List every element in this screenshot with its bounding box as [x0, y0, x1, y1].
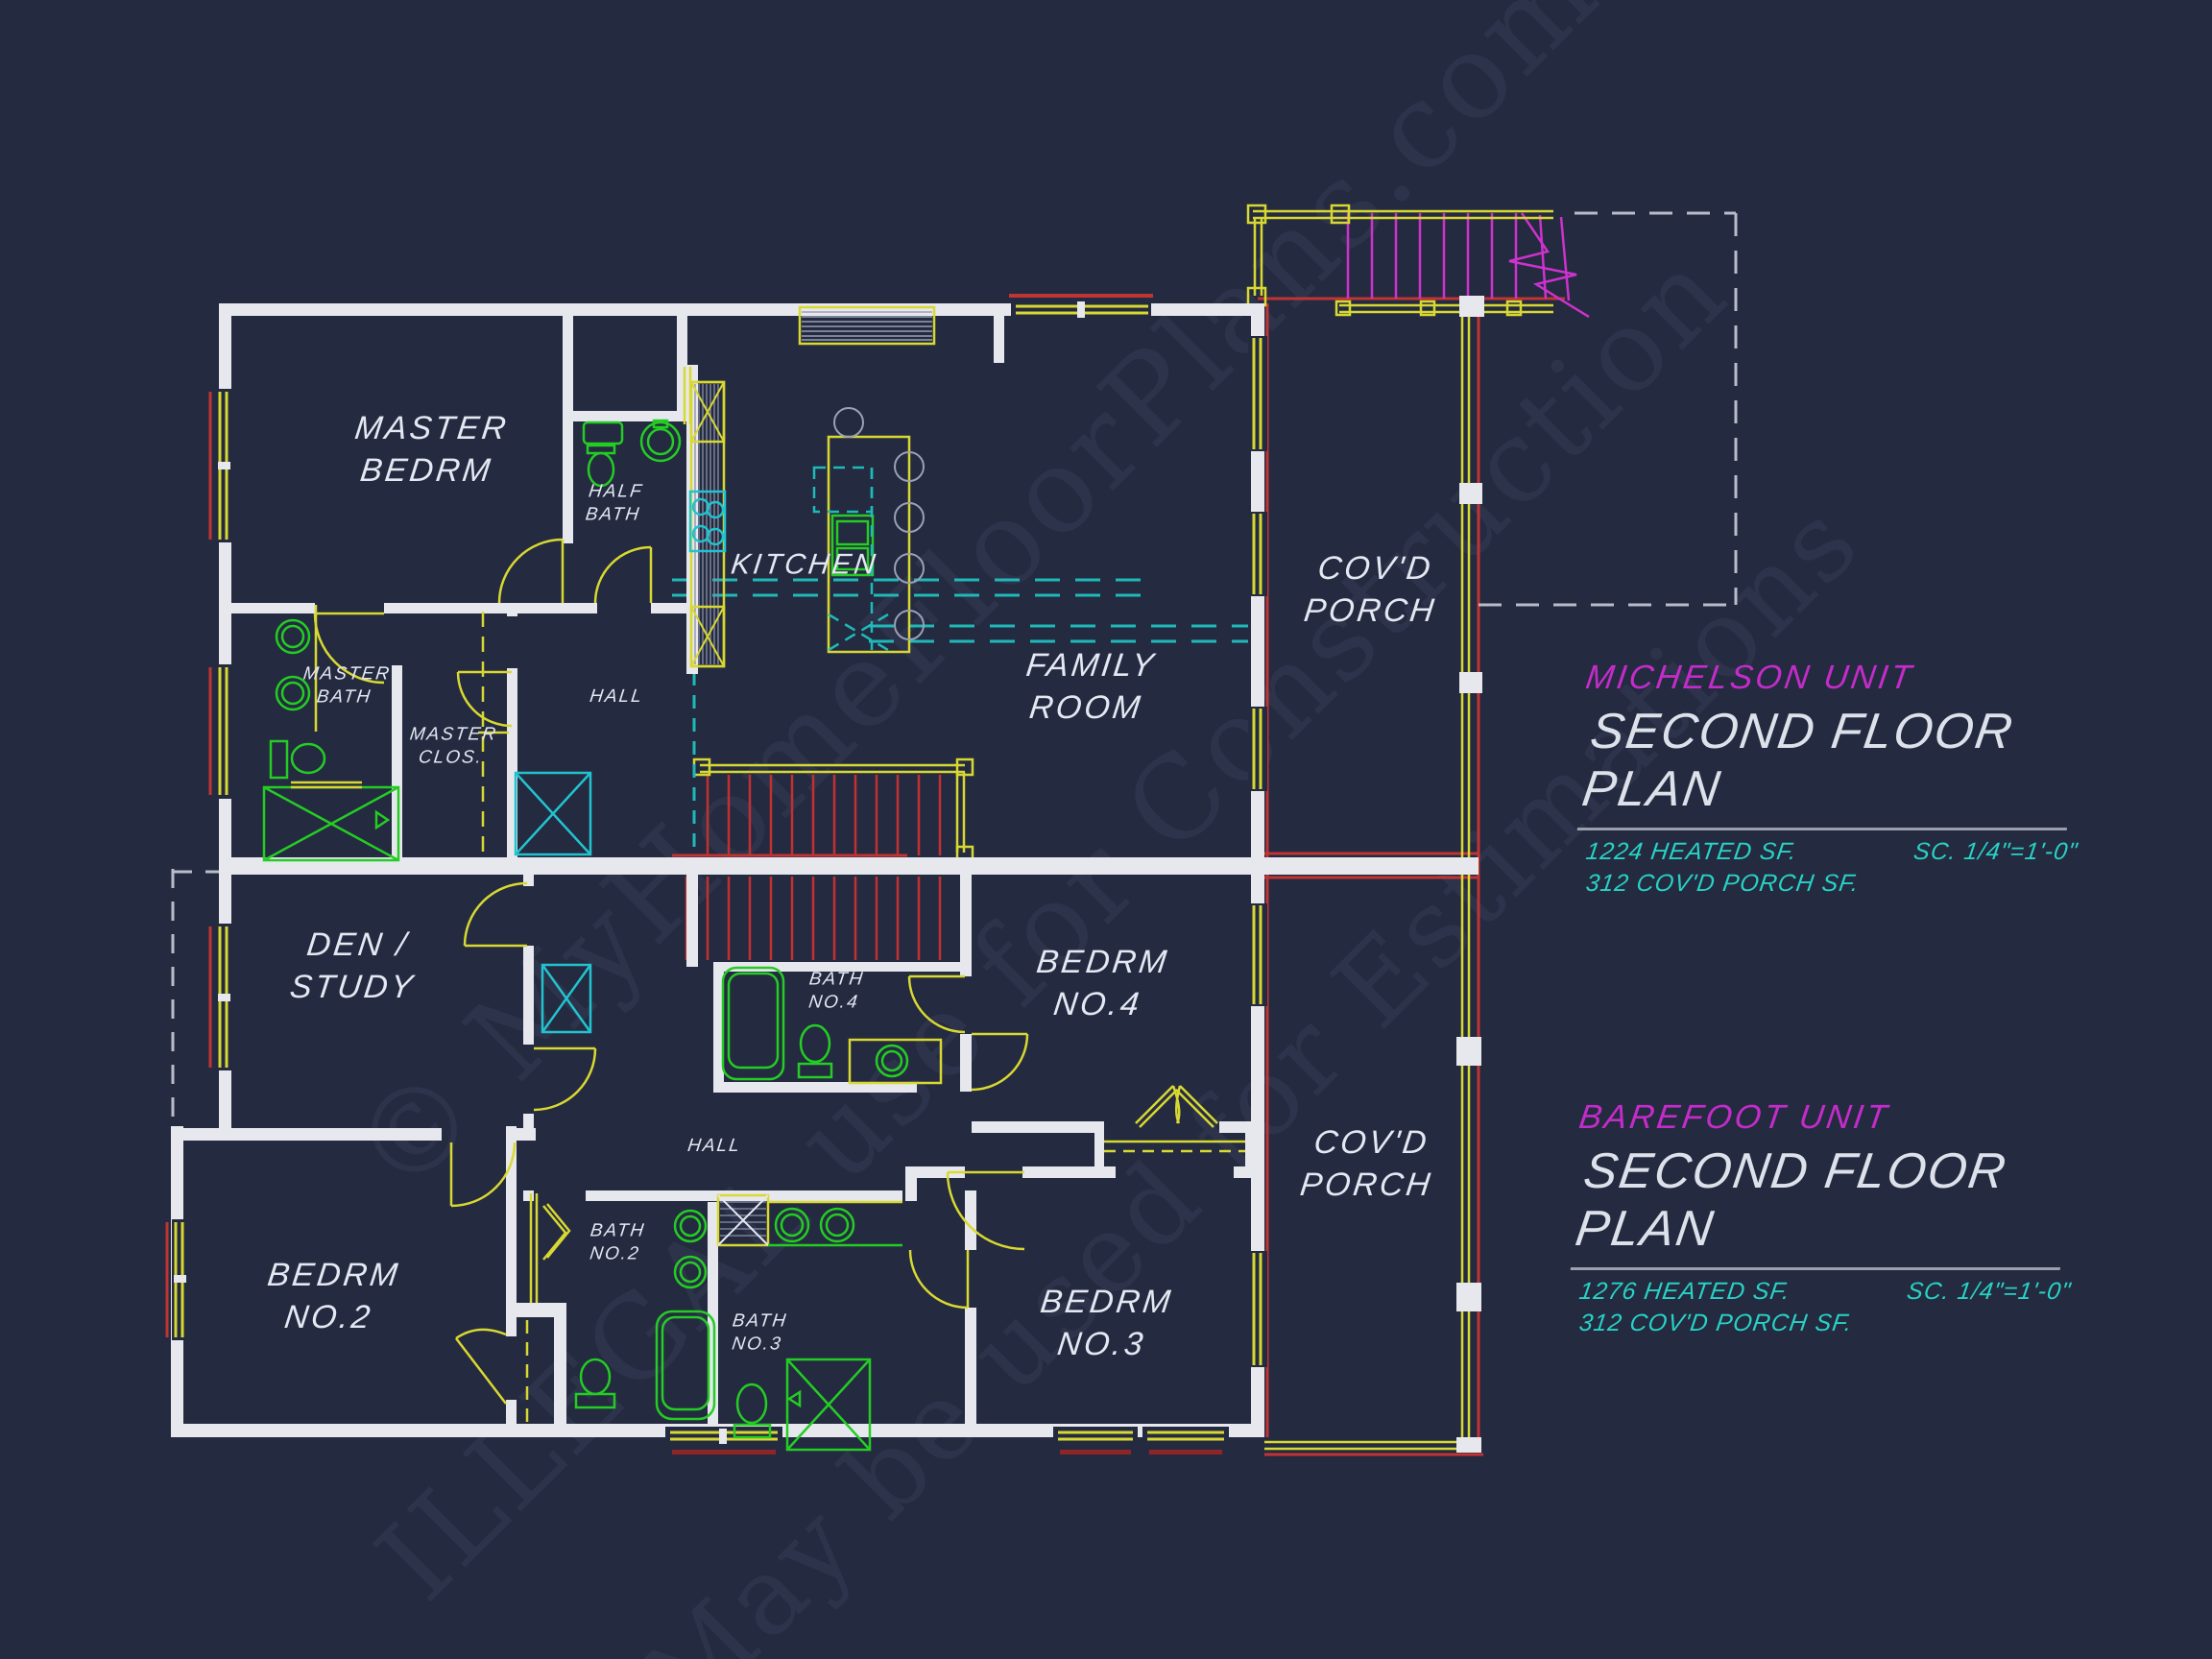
title-block-barefoot: BAREFOOT UNIT SECOND FLOOR PLAN 1276 HEA…: [1579, 1098, 2069, 1337]
stair-rails: [694, 205, 1553, 1449]
heated-sf: 1224 HEATED SF.: [1584, 838, 1862, 866]
room-label-hall-lower: HALL: [686, 1135, 742, 1158]
plan-title: SECOND FLOOR PLAN: [1571, 1142, 2079, 1270]
room-label-bath-no4: BATH NO.4: [805, 968, 865, 1014]
room-label-master-clos: MASTER CLOS.: [405, 723, 498, 769]
room-label-bedrm-no4: BEDRM NO.4: [1029, 941, 1172, 1025]
beam-dashed-lines: [672, 580, 1248, 853]
room-label-family-room: FAMILY ROOM: [1019, 644, 1159, 729]
room-label-bedrm-no3: BEDRM NO.3: [1033, 1281, 1176, 1365]
title-block-michelson: MICHELSON UNIT SECOND FLOOR PLAN 1224 HE…: [1586, 659, 2076, 898]
room-label-kitchen: KITCHEN: [729, 546, 879, 584]
room-label-hall-upper: HALL: [589, 685, 644, 709]
room-label-bath-no3: BATH NO.3: [728, 1310, 788, 1356]
unit-name: BAREFOOT UNIT: [1576, 1098, 2072, 1137]
closets: [478, 612, 768, 1424]
room-label-bath-no2: BATH NO.2: [586, 1219, 646, 1265]
room-label-master-bath: MASTER BATH: [299, 662, 392, 709]
plan-title: SECOND FLOOR PLAN: [1577, 703, 2085, 830]
room-label-den-study: DEN / STUDY: [287, 924, 422, 1008]
room-label-bedrm-no2: BEDRM NO.2: [260, 1254, 403, 1338]
room-label-master-bedrm: MASTER BEDRM: [348, 407, 512, 492]
plan-scale: SC. 1/4"=1'-0": [1908, 838, 2080, 898]
left-dashed-line: [173, 869, 221, 1123]
porch-sf: 312 COV'D PORCH SF.: [1577, 1310, 1855, 1337]
upper-stair-flight: [800, 307, 934, 344]
porch-sf: 312 COV'D PORCH SF.: [1584, 870, 1862, 898]
plan-scale: SC. 1/4"=1'-0": [1901, 1278, 2073, 1337]
heated-sf: 1276 HEATED SF.: [1577, 1278, 1855, 1306]
room-label-half-bath: HALF BATH: [584, 480, 644, 526]
kitchen-casework: [690, 382, 924, 666]
room-label-covd-porch-top: COV'D PORCH: [1302, 547, 1445, 632]
blueprint-page: © MyHomeFloorPlans.com ILLEGAL use for C…: [0, 0, 2212, 1659]
room-label-covd-porch-bottom: COV'D PORCH: [1298, 1121, 1441, 1206]
unit-name: MICHELSON UNIT: [1583, 659, 2079, 697]
